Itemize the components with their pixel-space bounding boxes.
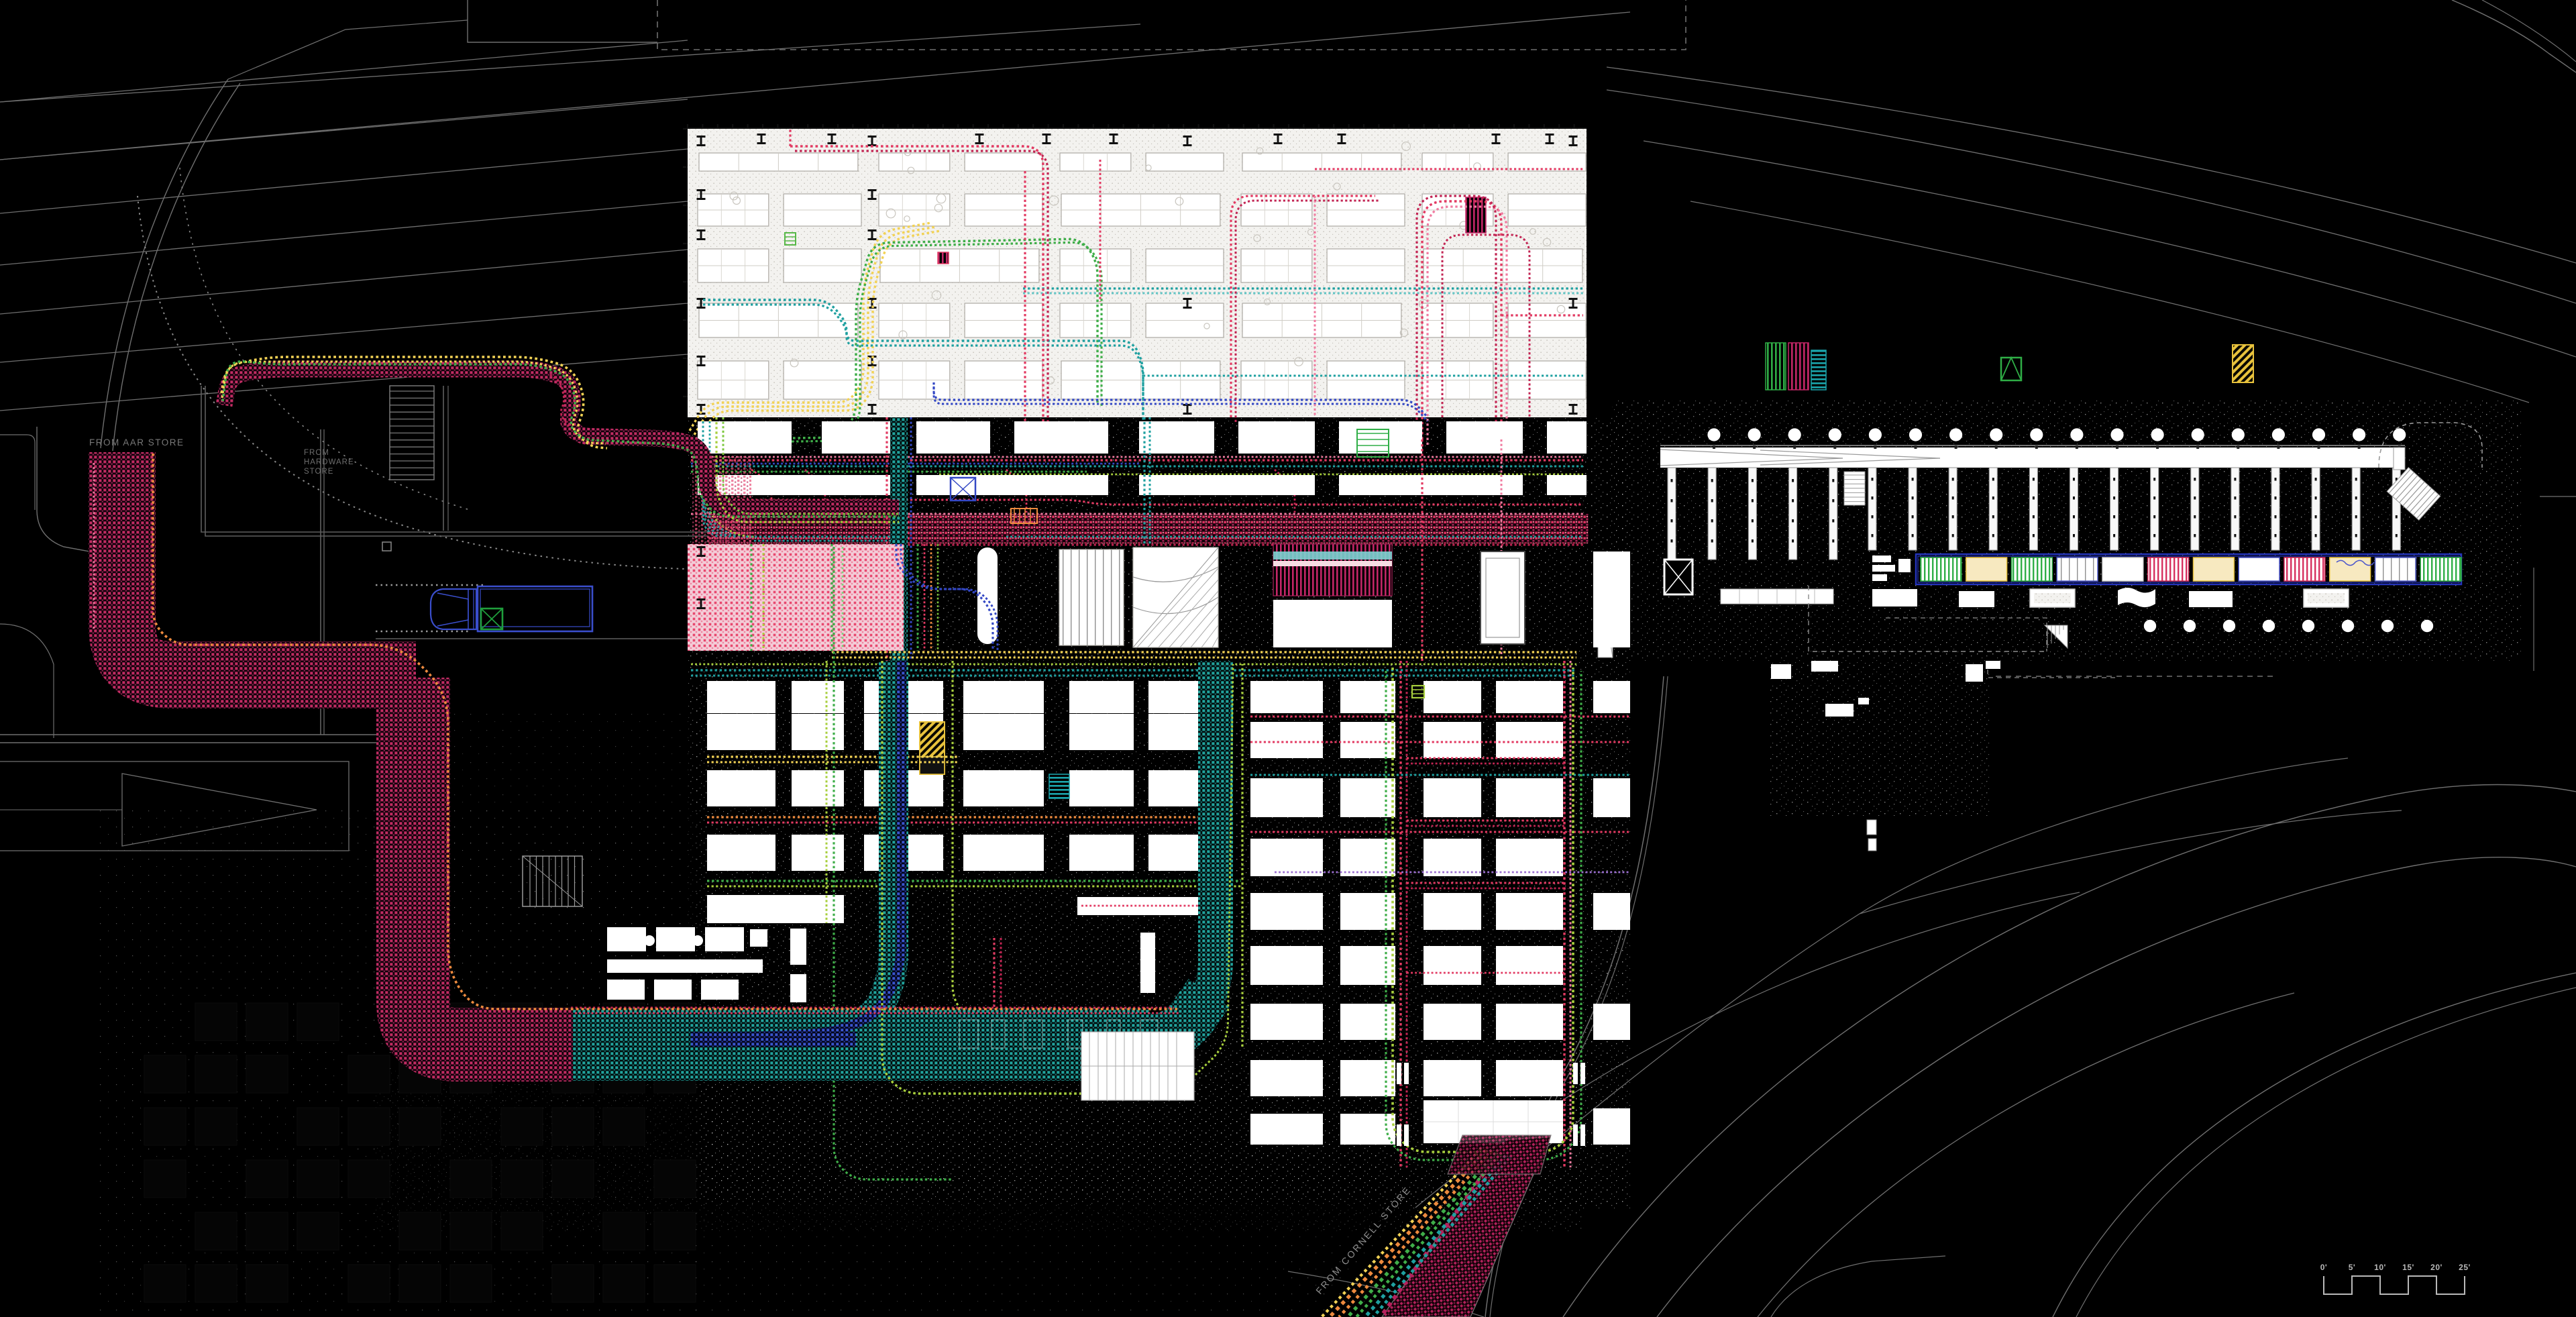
svg-text:10': 10' bbox=[2374, 1263, 2386, 1272]
svg-text:FROM: FROM bbox=[304, 449, 329, 457]
svg-text:20': 20' bbox=[2430, 1263, 2443, 1272]
svg-text:15': 15' bbox=[2402, 1263, 2414, 1272]
svg-text:5': 5' bbox=[2349, 1263, 2356, 1272]
svg-text:FROM AAR STORE: FROM AAR STORE bbox=[89, 437, 184, 447]
svg-text:25': 25' bbox=[2459, 1263, 2471, 1272]
svg-text:STORE: STORE bbox=[304, 468, 333, 476]
svg-text:0': 0' bbox=[2320, 1263, 2328, 1272]
svg-text:HARDWARE: HARDWARE bbox=[304, 458, 354, 466]
